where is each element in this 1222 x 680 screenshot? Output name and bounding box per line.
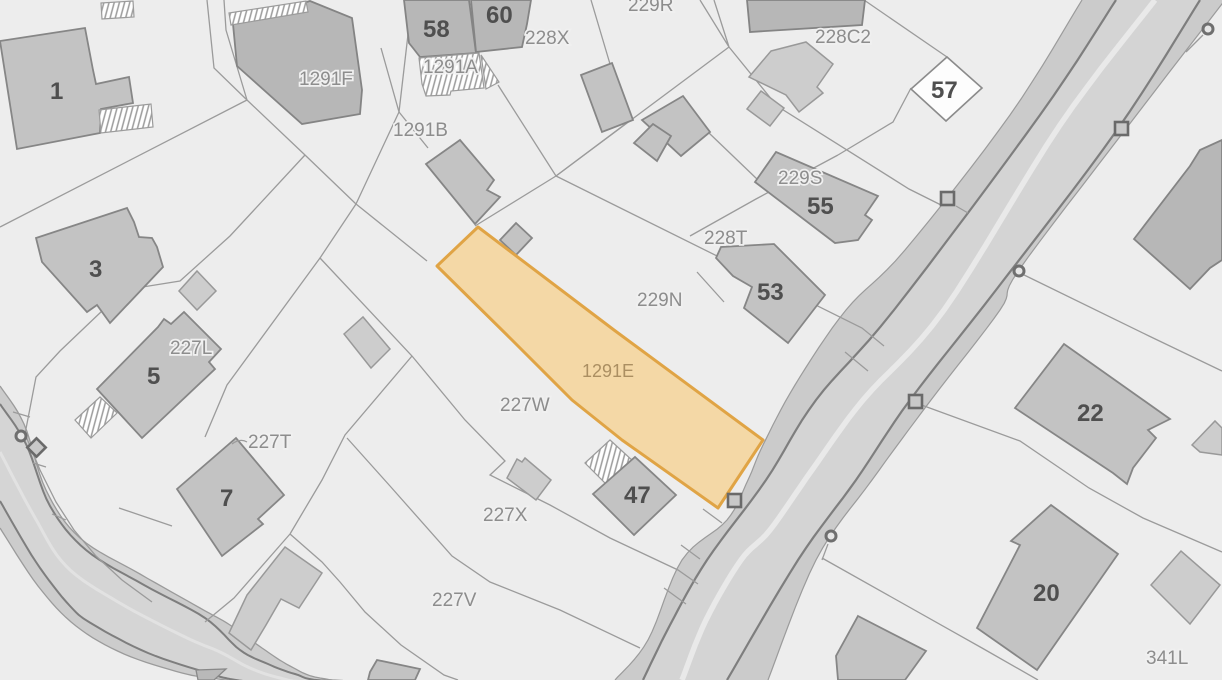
svg-text:5: 5 bbox=[147, 363, 160, 390]
svg-text:22: 22 bbox=[1077, 400, 1104, 427]
svg-text:228C2: 228C2 bbox=[815, 27, 871, 48]
svg-text:1: 1 bbox=[50, 78, 63, 105]
svg-text:227L: 227L bbox=[170, 338, 212, 359]
svg-text:341L: 341L bbox=[1146, 648, 1188, 669]
svg-text:7: 7 bbox=[220, 485, 233, 512]
svg-text:3: 3 bbox=[89, 256, 102, 283]
svg-text:227W: 227W bbox=[500, 395, 550, 416]
svg-text:228X: 228X bbox=[525, 28, 570, 49]
svg-text:57: 57 bbox=[931, 77, 958, 104]
svg-text:1291A: 1291A bbox=[423, 57, 478, 78]
svg-text:227X: 227X bbox=[483, 505, 528, 526]
svg-text:1291B: 1291B bbox=[393, 120, 448, 141]
svg-text:53: 53 bbox=[757, 279, 784, 306]
svg-text:20: 20 bbox=[1033, 580, 1060, 607]
svg-text:227V: 227V bbox=[432, 590, 477, 611]
svg-text:229S: 229S bbox=[778, 168, 822, 189]
svg-text:1291F: 1291F bbox=[299, 69, 353, 90]
svg-text:60: 60 bbox=[486, 2, 513, 29]
svg-text:47: 47 bbox=[624, 482, 651, 509]
svg-text:228T: 228T bbox=[704, 228, 748, 249]
svg-text:229N: 229N bbox=[637, 290, 682, 311]
svg-text:58: 58 bbox=[423, 16, 450, 43]
svg-text:1291E: 1291E bbox=[582, 361, 634, 381]
svg-text:227T: 227T bbox=[248, 432, 292, 453]
svg-text:229R: 229R bbox=[628, 0, 673, 16]
svg-text:55: 55 bbox=[807, 193, 834, 220]
